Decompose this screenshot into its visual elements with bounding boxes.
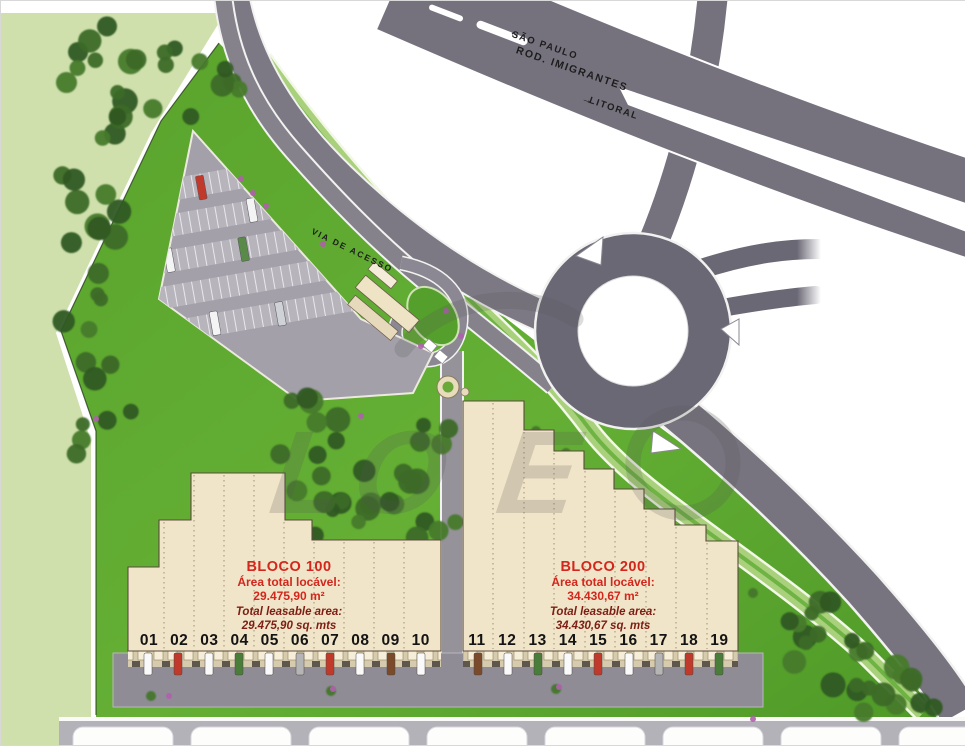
tree — [844, 633, 860, 649]
tree — [101, 356, 119, 374]
dock-truck — [205, 653, 213, 675]
tree — [98, 411, 117, 430]
tree — [96, 184, 117, 205]
tree — [799, 635, 814, 650]
tree — [53, 310, 75, 332]
unit-number-label: 04 — [230, 632, 248, 649]
tree — [61, 232, 82, 253]
site-plan-image: BLOCO 100 Área total locável: 29.475,90 … — [0, 0, 965, 746]
tree — [97, 16, 117, 36]
tree — [90, 287, 104, 301]
tree — [820, 591, 842, 613]
tree — [88, 263, 109, 284]
tree — [211, 74, 234, 97]
dock-truck — [174, 653, 182, 675]
flower-bush — [166, 693, 172, 699]
tree — [862, 681, 877, 696]
adjacent-building — [899, 727, 965, 745]
tree — [88, 53, 103, 68]
tree — [900, 668, 923, 691]
unit-number-label: 18 — [680, 632, 698, 649]
tree — [83, 367, 106, 390]
bloco100-area-value-pt: 29.475,90 m² — [253, 589, 324, 603]
dock-truck — [625, 653, 633, 675]
bloco200-title: BLOCO 200 — [560, 559, 645, 575]
adjacent-building — [309, 727, 409, 745]
tree — [56, 72, 77, 93]
bloco100-title: BLOCO 100 — [246, 559, 331, 575]
tree — [191, 53, 208, 70]
dock-truck — [564, 653, 572, 675]
flower-bush — [750, 716, 756, 722]
flower-bush — [263, 203, 269, 209]
tree — [123, 404, 139, 420]
adjacent-building — [781, 727, 881, 745]
tree — [126, 49, 147, 70]
adjacent-building — [191, 727, 291, 745]
tree — [109, 108, 126, 125]
unit-number-label: 14 — [559, 632, 577, 649]
tree — [70, 60, 86, 76]
dock-truck — [296, 653, 304, 675]
adjacent-building — [73, 727, 173, 745]
unit-number-label: 08 — [351, 632, 369, 649]
unit-number-label: 07 — [321, 632, 339, 649]
unit-number-label: 11 — [468, 632, 485, 649]
unit-number-label: 01 — [140, 632, 158, 649]
tree — [781, 612, 799, 630]
dock-truck — [655, 653, 663, 675]
adjacent-building — [427, 727, 527, 745]
bloco100-area-label-en: Total leasable area: — [236, 606, 342, 618]
adjacent-building — [545, 727, 645, 745]
dock-truck — [534, 653, 542, 675]
flower-bush — [458, 333, 464, 339]
flower-bush — [238, 176, 244, 182]
tree — [782, 650, 806, 674]
tree — [76, 417, 90, 431]
tree — [217, 61, 234, 78]
flower-bush — [250, 190, 256, 196]
unit-number-label: 02 — [170, 632, 188, 649]
tree — [854, 703, 873, 722]
flower-bush — [93, 416, 99, 422]
bloco100-area-label-pt: Área total locável: — [237, 574, 340, 589]
tree — [143, 99, 162, 118]
tree — [821, 672, 846, 697]
unit-number-label: 13 — [528, 632, 546, 649]
tree — [910, 692, 930, 712]
tree — [78, 29, 101, 52]
tree — [157, 45, 173, 61]
bloco200-area-label-en: Total leasable area: — [550, 606, 656, 618]
tree — [95, 130, 111, 146]
dock-truck — [265, 653, 273, 675]
planter — [461, 388, 469, 396]
bloco200-area-value-pt: 34.430,67 m² — [567, 589, 638, 603]
shrub — [146, 691, 156, 701]
bloco100-area-value-en: 29.475,90 sq. mts — [241, 620, 337, 632]
master-plan-svg: BLOCO 100 Área total locável: 29.475,90 … — [1, 1, 965, 745]
tree — [81, 321, 98, 338]
dock-truck — [387, 653, 395, 675]
bottom-strip — [59, 717, 965, 745]
flower-bush — [330, 686, 336, 692]
tree — [65, 190, 89, 214]
dock-truck — [417, 653, 425, 675]
tree — [849, 678, 864, 693]
bloco200-area-label-pt: Área total locável: — [551, 574, 654, 589]
dock-truck — [474, 653, 482, 675]
dock-truck — [144, 653, 152, 675]
unit-number-label: 06 — [291, 632, 309, 649]
dock-truck — [504, 653, 512, 675]
shrub — [748, 588, 758, 598]
tree — [110, 85, 125, 100]
tree — [856, 642, 874, 660]
dock-truck — [356, 653, 364, 675]
unit-number-label: 09 — [381, 632, 399, 649]
dock-truck — [326, 653, 334, 675]
tree — [182, 108, 199, 125]
unit-number-label: 12 — [498, 632, 516, 649]
tree — [67, 444, 86, 463]
unit-number-label: 17 — [650, 632, 668, 649]
tree — [87, 217, 111, 241]
unit-number-label: 03 — [200, 632, 218, 649]
watermark-text: LO E — [263, 408, 597, 539]
dock-truck — [715, 653, 723, 675]
planter — [443, 382, 454, 393]
unit-number-label: 16 — [619, 632, 637, 649]
dock-truck — [594, 653, 602, 675]
unit-number-label: 10 — [412, 632, 430, 649]
adjacent-building — [663, 727, 763, 745]
bloco200-area-value-en: 34.430,67 sq. mts — [556, 620, 651, 632]
dock-truck — [685, 653, 693, 675]
dock-truck — [235, 653, 243, 675]
unit-number-label: 15 — [589, 632, 607, 649]
flower-bush — [556, 684, 562, 690]
tree — [297, 387, 318, 408]
unit-number-label: 19 — [710, 632, 728, 649]
flower-bush — [418, 343, 424, 349]
tree — [63, 168, 85, 190]
unit-number-label: 05 — [261, 632, 279, 649]
